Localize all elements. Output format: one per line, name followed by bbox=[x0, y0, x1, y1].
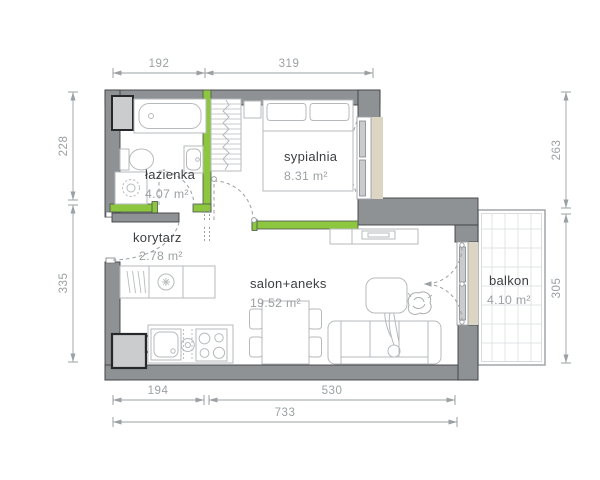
entrance-jamb-bottom bbox=[106, 258, 115, 263]
wardrobe bbox=[211, 99, 241, 171]
sofa bbox=[328, 321, 441, 364]
washing-machine bbox=[115, 172, 147, 204]
coffee-table bbox=[366, 278, 407, 313]
room-area-salon: 19.52 m² bbox=[250, 296, 301, 310]
dim-top-2: 319 bbox=[279, 58, 300, 70]
dim-left-1: 228 bbox=[58, 136, 70, 157]
floor-plan-canvas: łazienka 4.07 m² sypialnia 8.31 m² koryt… bbox=[0, 0, 600, 480]
dining-set bbox=[250, 301, 322, 364]
room-area-sypialnia: 8.31 m² bbox=[284, 169, 328, 183]
nightstand bbox=[244, 101, 261, 118]
dim-overall: 733 bbox=[275, 407, 296, 419]
dim-bottom-1: 194 bbox=[148, 385, 169, 397]
kitchen-counter-lower bbox=[148, 325, 233, 363]
kitchen-counter-upper bbox=[120, 266, 215, 298]
room-label-korytarz: korytarz bbox=[133, 230, 182, 245]
room-area-balkon: 4.10 m² bbox=[487, 293, 531, 307]
room-area-korytarz: 2.78 m² bbox=[139, 249, 183, 263]
tv-cabinet bbox=[330, 229, 418, 244]
room-area-lazienka: 4.07 m² bbox=[145, 187, 189, 201]
bathtub bbox=[134, 99, 206, 133]
dim-right-1: 263 bbox=[551, 140, 563, 161]
optional-partition-dashes bbox=[205, 210, 210, 243]
bedroom-door bbox=[205, 177, 257, 243]
room-label-sypialnia: sypialnia bbox=[284, 149, 338, 164]
room-label-lazienka: łazienka bbox=[145, 167, 196, 182]
dim-top-1: 192 bbox=[149, 58, 170, 70]
balcony-door bbox=[425, 242, 478, 325]
room-label-salon: salon+aneks bbox=[250, 276, 327, 291]
dim-right-2: 305 bbox=[551, 278, 563, 299]
room-label-balkon: balkon bbox=[489, 273, 529, 288]
dim-bottom-2: 530 bbox=[322, 385, 343, 397]
floor-plan-svg: łazienka 4.07 m² sypialnia 8.31 m² koryt… bbox=[0, 0, 600, 480]
dim-left-2: 335 bbox=[58, 273, 70, 294]
plant bbox=[408, 292, 432, 315]
